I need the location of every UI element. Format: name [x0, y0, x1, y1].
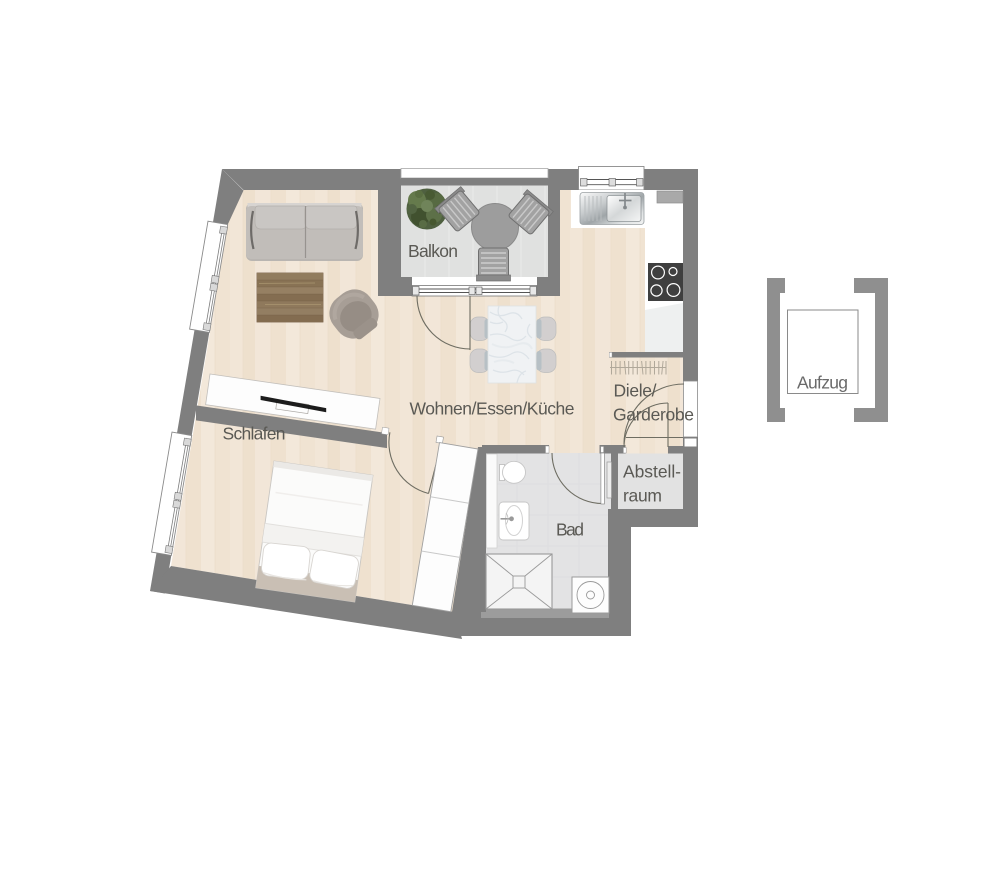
svg-text:Abstell-: Abstell- [623, 462, 681, 482]
svg-text:Balkon: Balkon [408, 241, 458, 261]
svg-text:Garderobe: Garderobe [613, 405, 694, 425]
svg-text:Bad: Bad [556, 520, 584, 540]
svg-text:Wohnen/Essen/Küche: Wohnen/Essen/Küche [410, 399, 575, 419]
svg-text:Schlafen: Schlafen [223, 424, 286, 444]
svg-text:Aufzug: Aufzug [797, 373, 848, 393]
svg-text:raum: raum [623, 486, 662, 506]
svg-text:Diele/: Diele/ [614, 381, 657, 401]
